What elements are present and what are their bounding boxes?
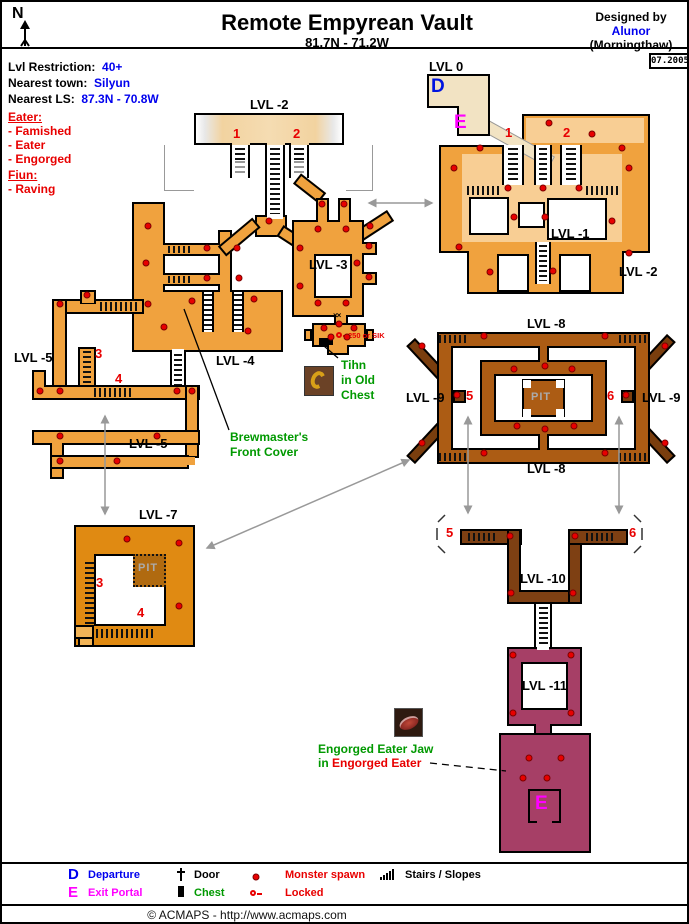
monster-entry: - Engorged <box>8 152 71 166</box>
stairs <box>586 186 619 195</box>
monster-spawn-dot <box>505 185 512 192</box>
monster-spawn-dot <box>189 298 196 305</box>
monster-spawn-dot <box>297 283 304 290</box>
lvl-restriction-label: Lvl Restriction: <box>8 60 95 74</box>
stair-number: 4 <box>115 371 122 386</box>
chamber-opening <box>537 820 552 824</box>
passage-join <box>216 275 220 284</box>
lvl2-entry-room <box>194 113 344 145</box>
eater-jaw-item-icon <box>394 708 423 737</box>
monster-spawn-dot <box>354 260 361 267</box>
monster-spawn-dot <box>315 226 322 233</box>
room-void <box>523 409 531 417</box>
monster-spawn-dot <box>367 223 374 230</box>
monster-spawn-dot <box>511 366 518 373</box>
level-label: LVL -1 <box>551 226 590 241</box>
monster-spawn-dot <box>511 214 518 221</box>
monster-spawn-dot <box>343 300 350 307</box>
locked-icon <box>336 332 342 338</box>
date-stamp: 07.2005 <box>649 53 689 69</box>
stairs-icon <box>380 868 394 880</box>
monster-spawn-dot <box>236 275 243 282</box>
lock-note: 250 or SIK <box>348 331 385 340</box>
monster-spawn-dot <box>419 343 426 350</box>
stair-number: 5 <box>446 525 453 540</box>
room-void <box>559 254 591 292</box>
room-void <box>497 254 529 292</box>
monster-group-fiun: Fiun: <box>8 168 37 182</box>
passage-join <box>187 457 195 465</box>
stairs <box>168 246 192 253</box>
lvl-restriction-row: Lvl Restriction: 40+ <box>8 60 122 74</box>
monster-spawn-dot <box>510 710 517 717</box>
monster-group-eater: Eater: <box>8 110 42 124</box>
designer-block: Designed by Alunor (Morningthaw) <box>581 10 681 52</box>
nearest-town-value: Silyun <box>94 76 130 90</box>
monster-spawn-dot <box>145 301 152 308</box>
stairs <box>204 294 212 330</box>
monster-spawn-dot <box>454 392 461 399</box>
monster-spawn-dot <box>124 536 131 543</box>
monster-spawn-dot <box>344 334 351 341</box>
level-label: LVL -11 <box>522 678 567 693</box>
designed-by-label: Designed by <box>581 10 681 24</box>
legend-locked-label: Locked <box>285 887 324 899</box>
room-wall <box>194 143 232 145</box>
stairs <box>468 533 498 541</box>
header-divider <box>2 47 689 49</box>
portal-marker-E: E <box>454 112 467 134</box>
compass-north-label: N <box>12 5 24 23</box>
monster-spawn-dot <box>542 426 549 433</box>
monster-spawn-dot <box>57 458 64 465</box>
monster-spawn-dot <box>481 333 488 340</box>
monster-spawn-dot <box>602 333 609 340</box>
monster-spawn-dot <box>245 328 252 335</box>
monster-spawn-dot <box>568 710 575 717</box>
monster-spawn-dot <box>145 223 152 230</box>
monster-spawn-dot <box>189 388 196 395</box>
level-label: LVL -10 <box>520 571 566 586</box>
monster-spawn-dot <box>558 755 565 762</box>
monster-spawn-dot <box>176 540 183 547</box>
tihn-item-icon <box>304 366 334 396</box>
level-label: LVL -8 <box>527 461 566 476</box>
room-void <box>556 409 564 417</box>
locked-icon <box>250 890 256 896</box>
passage-join <box>540 446 547 451</box>
monster-spawn-dot <box>341 201 348 208</box>
portal-marker-E: E <box>535 793 548 815</box>
level-link-arrow <box>207 460 409 548</box>
copyright-text: © ACMAPS - http://www.acmaps.com <box>97 908 397 922</box>
monster-spawn-dot <box>544 775 551 782</box>
boundary-line <box>346 190 373 191</box>
designer-server: (Morningthaw) <box>581 38 681 52</box>
monster-spawn-dot <box>114 458 121 465</box>
stairs <box>439 335 467 343</box>
stair-number: 1 <box>505 125 512 140</box>
monster-entry: - Raving <box>8 182 55 196</box>
monster-spawn-dot <box>336 321 343 328</box>
level-label: LVL -8 <box>527 316 566 331</box>
stairs <box>96 629 154 638</box>
passage-join <box>187 432 197 443</box>
legend-door-label: Door <box>194 869 220 881</box>
passage-join <box>459 104 488 110</box>
brewmaster-note: Brewmaster's <box>230 430 308 444</box>
pit-label: PIT <box>531 391 551 403</box>
designer-name: Alunor <box>581 24 681 38</box>
monster-spawn-dot <box>507 533 514 540</box>
monster-spawn-dot <box>662 343 669 350</box>
passage-join <box>134 288 163 294</box>
passage-join <box>80 387 94 398</box>
stairs <box>294 161 304 175</box>
monster-spawn-dot <box>487 269 494 276</box>
monster-spawn-dot <box>143 260 150 267</box>
monster-spawn-dot <box>419 440 426 447</box>
nearest-town-label: Nearest town: <box>8 76 87 90</box>
monster-spawn-dot <box>161 324 168 331</box>
tihn-note: Chest <box>341 388 374 402</box>
stair-number: 3 <box>96 575 103 590</box>
monster-spawn-dot <box>315 300 322 307</box>
passage-join <box>163 245 167 254</box>
stairs <box>539 245 547 281</box>
stairs <box>539 607 548 645</box>
boundary-line <box>372 145 373 191</box>
stairs <box>234 294 242 330</box>
stairs <box>168 276 192 283</box>
monster-spawn-dot <box>619 145 626 152</box>
door-icon: ×× <box>333 311 340 320</box>
monster-spawn-dot <box>540 185 547 192</box>
room-wall <box>309 143 344 145</box>
pit-label: PIT <box>138 562 158 574</box>
monster-spawn-dot <box>57 301 64 308</box>
legend-monster-label: Monster spawn <box>285 869 365 881</box>
monster-spawn-dot <box>57 433 64 440</box>
monster-spawn-dot <box>297 245 304 252</box>
level-label: LVL -2 <box>250 97 289 112</box>
monster-spawn-dot <box>662 440 669 447</box>
legend-chest-label: Chest <box>194 887 225 899</box>
stairs <box>439 453 467 461</box>
monster-spawn-dot <box>37 388 44 395</box>
passage-join <box>163 275 167 284</box>
monster-spawn-dot <box>626 165 633 172</box>
stair-number: 5 <box>466 388 473 403</box>
stair-number: 6 <box>607 388 614 403</box>
legend-exit-key: E <box>68 884 78 901</box>
stair-number: 1 <box>233 126 240 141</box>
stairs <box>235 161 245 175</box>
monster-spawn-dot <box>251 296 258 303</box>
stairs <box>539 148 547 182</box>
level-label: LVL -2 <box>619 264 658 279</box>
stairs <box>85 562 94 624</box>
nearest-town-row: Nearest town: Silyun <box>8 76 130 90</box>
room-void <box>523 380 531 388</box>
passage-join <box>220 288 230 294</box>
monster-spawn-dot <box>570 590 577 597</box>
nearest-ls-label: Nearest LS: <box>8 92 75 106</box>
stairs <box>619 335 647 343</box>
monster-spawn-dot <box>514 423 521 430</box>
eater-jaw-note: in Engorged Eater <box>318 756 421 770</box>
map-page: N Remote Empyrean Vault 81.7N - 71.2W De… <box>0 0 689 924</box>
stairs <box>467 186 499 195</box>
lvl-restriction-value: 40+ <box>102 60 122 74</box>
stair-number: 3 <box>95 346 102 361</box>
monster-spawn-dot <box>266 218 273 225</box>
legend-departure-label: Departure <box>88 869 140 881</box>
level-label: LVL -4 <box>216 353 255 368</box>
monster-spawn-dot <box>343 226 350 233</box>
room-void <box>556 380 564 388</box>
monster-spawn-dot <box>589 131 596 138</box>
monster-spawn-dot <box>508 590 515 597</box>
lvl5-passage <box>50 467 64 479</box>
stairs <box>566 148 576 182</box>
monster-spawn-dot <box>510 652 517 659</box>
passage-join <box>540 432 547 437</box>
monster-spawn-dot <box>451 165 458 172</box>
stair-number: 2 <box>293 126 300 141</box>
stairs <box>508 148 518 182</box>
map-title: Remote Empyrean Vault <box>162 10 532 36</box>
boundary-line <box>164 145 165 191</box>
level-label: LVL -9 <box>642 390 681 405</box>
monster-spawn-dot <box>609 218 616 225</box>
compass-arrow-icon <box>8 19 38 49</box>
monster-spawn-dot <box>204 245 211 252</box>
passage-join <box>540 344 547 349</box>
annotation-pointer <box>430 763 506 771</box>
monster-spawn-dot <box>623 392 630 399</box>
monster-spawn-dot <box>328 334 335 341</box>
monster-spawn-dot <box>520 775 527 782</box>
brewmaster-note: Front Cover <box>230 445 298 459</box>
monster-spawn-dot <box>571 423 578 430</box>
room-void <box>469 197 509 235</box>
monster-spawn-dot <box>550 268 557 275</box>
passage-join <box>52 443 62 449</box>
stair-number: 6 <box>629 525 636 540</box>
monster-spawn-dot <box>542 363 549 370</box>
monster-spawn-dot <box>542 214 549 221</box>
monster-spawn-dot <box>576 185 583 192</box>
monster-spawn-dot <box>481 450 488 457</box>
lvl7-entry-nub <box>78 637 94 647</box>
level-label: LVL -9 <box>406 390 445 405</box>
monster-spawn-dot <box>351 325 358 332</box>
monster-spawn-dot <box>234 245 241 252</box>
monster-spawn-dot <box>456 244 463 251</box>
lvl5-passage <box>52 299 67 397</box>
level-label: LVL 0 <box>429 59 463 74</box>
monster-spawn-dot <box>174 388 181 395</box>
monster-entry: - Eater <box>8 138 45 152</box>
passage-join <box>537 646 549 650</box>
lvl3-chest-room <box>304 329 312 341</box>
monster-spawn-dot <box>526 755 533 762</box>
stairs <box>619 453 647 461</box>
eater-jaw-in: in <box>318 756 329 770</box>
monster-spawn-dot <box>569 366 576 373</box>
eater-jaw-note: Engorged Eater Jaw <box>318 742 433 756</box>
nearest-ls-value: 87.3N - 70.8W <box>81 92 158 106</box>
passage-join <box>340 216 349 224</box>
monster-spawn-dot <box>366 274 373 281</box>
legend-divider-top <box>2 862 689 864</box>
monster-spawn-dot <box>176 603 183 610</box>
monster-spawn-dot <box>84 292 91 299</box>
nearest-ls-row: Nearest LS: 87.3N - 70.8W <box>8 92 159 106</box>
legend-divider-bottom <box>2 904 689 906</box>
lvl1-inner-floor <box>526 118 644 143</box>
stairs <box>94 388 134 397</box>
passage-join <box>318 216 327 224</box>
monster-spawn-dot <box>602 450 609 457</box>
level-label: LVL -7 <box>139 507 178 522</box>
monster-spawn-dot <box>321 325 328 332</box>
level-label: LVL -5 <box>129 436 168 451</box>
level-label: LVL -3 <box>309 257 348 272</box>
boundary-line <box>164 190 194 191</box>
stairs <box>270 148 280 216</box>
stair-number: 2 <box>563 125 570 140</box>
stairs <box>174 354 182 385</box>
monster-spawn-dot <box>626 250 633 257</box>
stairs <box>235 148 245 161</box>
stairs <box>586 533 616 541</box>
legend-exit-label: Exit Portal <box>88 887 142 899</box>
monster-spawn-dot <box>572 533 579 540</box>
stairs <box>294 148 304 161</box>
monster-spawn-icon <box>253 874 260 881</box>
stair-number: 4 <box>137 605 144 620</box>
stairs <box>100 302 140 311</box>
portal-marker-D: D <box>431 76 445 98</box>
monster-spawn-dot <box>366 243 373 250</box>
chest-icon <box>178 886 184 897</box>
monster-spawn-dot <box>204 275 211 282</box>
passage-join <box>536 722 550 726</box>
monster-spawn-dot <box>568 652 575 659</box>
legend-stairs-label: Stairs / Slopes <box>405 869 481 881</box>
monster-spawn-dot <box>477 145 484 152</box>
eater-jaw-location: Engorged Eater <box>332 756 421 770</box>
monster-spawn-dot <box>319 201 326 208</box>
door-icon <box>180 868 182 881</box>
level-label: LVL -5 <box>14 350 53 365</box>
monster-spawn-dot <box>57 388 64 395</box>
legend-departure-key: D <box>68 866 79 883</box>
monster-spawn-dot <box>546 120 553 127</box>
tihn-note: Tihn <box>341 358 366 372</box>
monster-entry: - Famished <box>8 124 71 138</box>
tihn-note: in Old <box>341 373 375 387</box>
